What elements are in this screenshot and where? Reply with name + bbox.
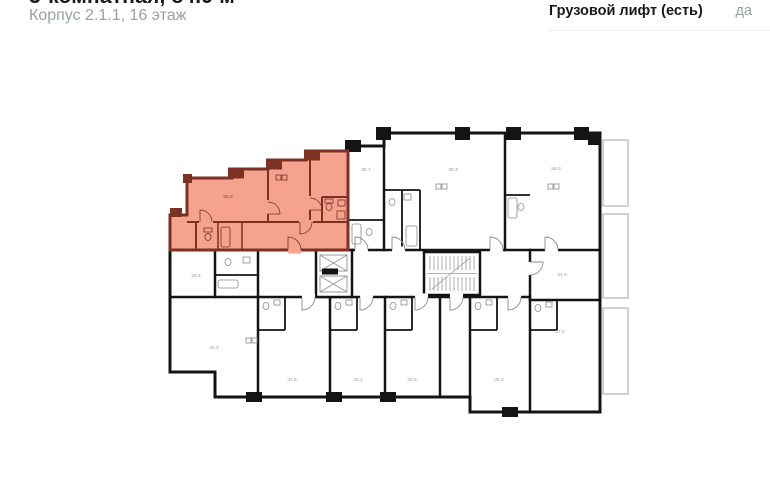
highlighted-entry-gap <box>288 247 301 254</box>
room-area-label: 44.3 <box>209 345 219 351</box>
room-area-label: 29.2 <box>191 273 201 279</box>
room-area-label: 36.2 <box>494 377 504 383</box>
room-area-label: 37.5 <box>555 329 565 335</box>
room-area-label: 31.9 <box>557 272 567 278</box>
room-area-label: 84.9 <box>223 194 233 200</box>
floor-plan[interactable]: 84.9 29.2 35.7 39.3 59.3 31.9 37.5 44.3 … <box>0 0 770 500</box>
room-area-label: 35.7 <box>361 167 371 173</box>
room-area-label: 29.5 <box>407 377 417 383</box>
room-area-label: 29.1 <box>353 377 363 383</box>
freight-elevator-box <box>322 269 338 275</box>
apartment-floor-page: 3-комнатная, 84.9 м² Корпус 2.1.1, 16 эт… <box>0 0 770 500</box>
room-area-label: 37.6 <box>287 377 297 383</box>
room-area-label: 59.3 <box>551 166 561 172</box>
right-balconies <box>603 140 628 394</box>
staircase <box>424 252 480 295</box>
highlighted-apartment[interactable] <box>170 150 348 254</box>
elevator-core <box>316 250 352 297</box>
room-area-label: 39.3 <box>448 167 458 173</box>
